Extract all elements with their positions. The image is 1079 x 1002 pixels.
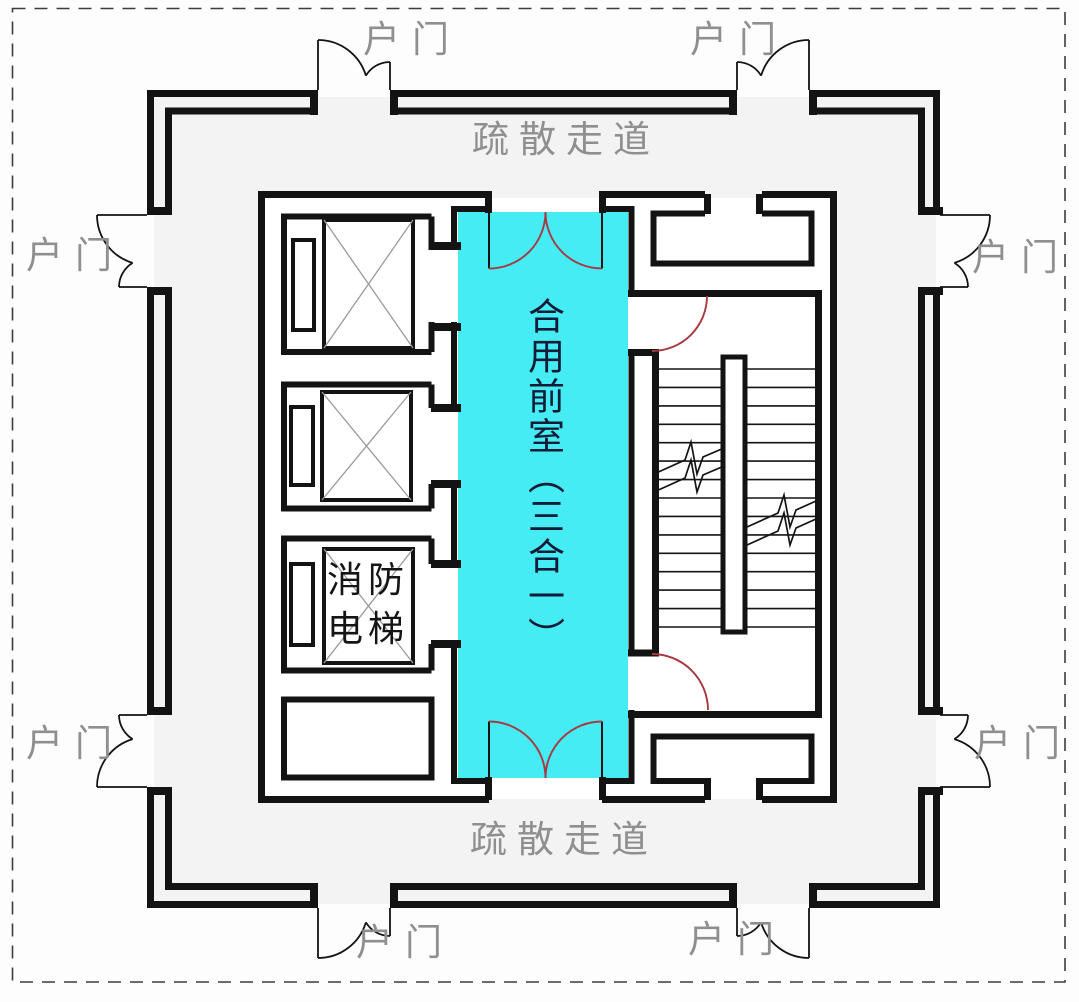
label-evac-corridor-bottom: 疏散走道 bbox=[470, 822, 658, 859]
label-front-room: 合用前室（三合一） bbox=[521, 297, 562, 727]
label-unit-door-bottom-right: 户门 bbox=[688, 922, 786, 959]
label-fire-elevator-line2: 电梯 bbox=[322, 605, 414, 654]
label-fire-elevator-line1: 消防 bbox=[322, 556, 414, 605]
label-unit-door-top-left: 户门 bbox=[363, 22, 461, 59]
elevator-counterweights bbox=[291, 240, 314, 645]
label-unit-door-right-top: 户门 bbox=[972, 240, 1070, 277]
floor-plan-page: 户门 户门 户门 户门 户门 户门 户门 户门 疏散走道 疏散走道 合用前室（三… bbox=[0, 0, 1079, 1002]
label-evac-corridor-top: 疏散走道 bbox=[472, 122, 660, 159]
stair-center-wall bbox=[723, 357, 745, 632]
label-fire-elevator: 消防 电梯 bbox=[322, 556, 414, 653]
label-unit-door-bottom-left: 户门 bbox=[356, 925, 454, 962]
label-unit-door-left-top: 户门 bbox=[26, 238, 124, 275]
label-unit-door-top-right: 户门 bbox=[690, 22, 788, 59]
label-unit-door-right-bottom: 户门 bbox=[974, 726, 1072, 763]
label-unit-door-left-bottom: 户门 bbox=[26, 726, 124, 763]
